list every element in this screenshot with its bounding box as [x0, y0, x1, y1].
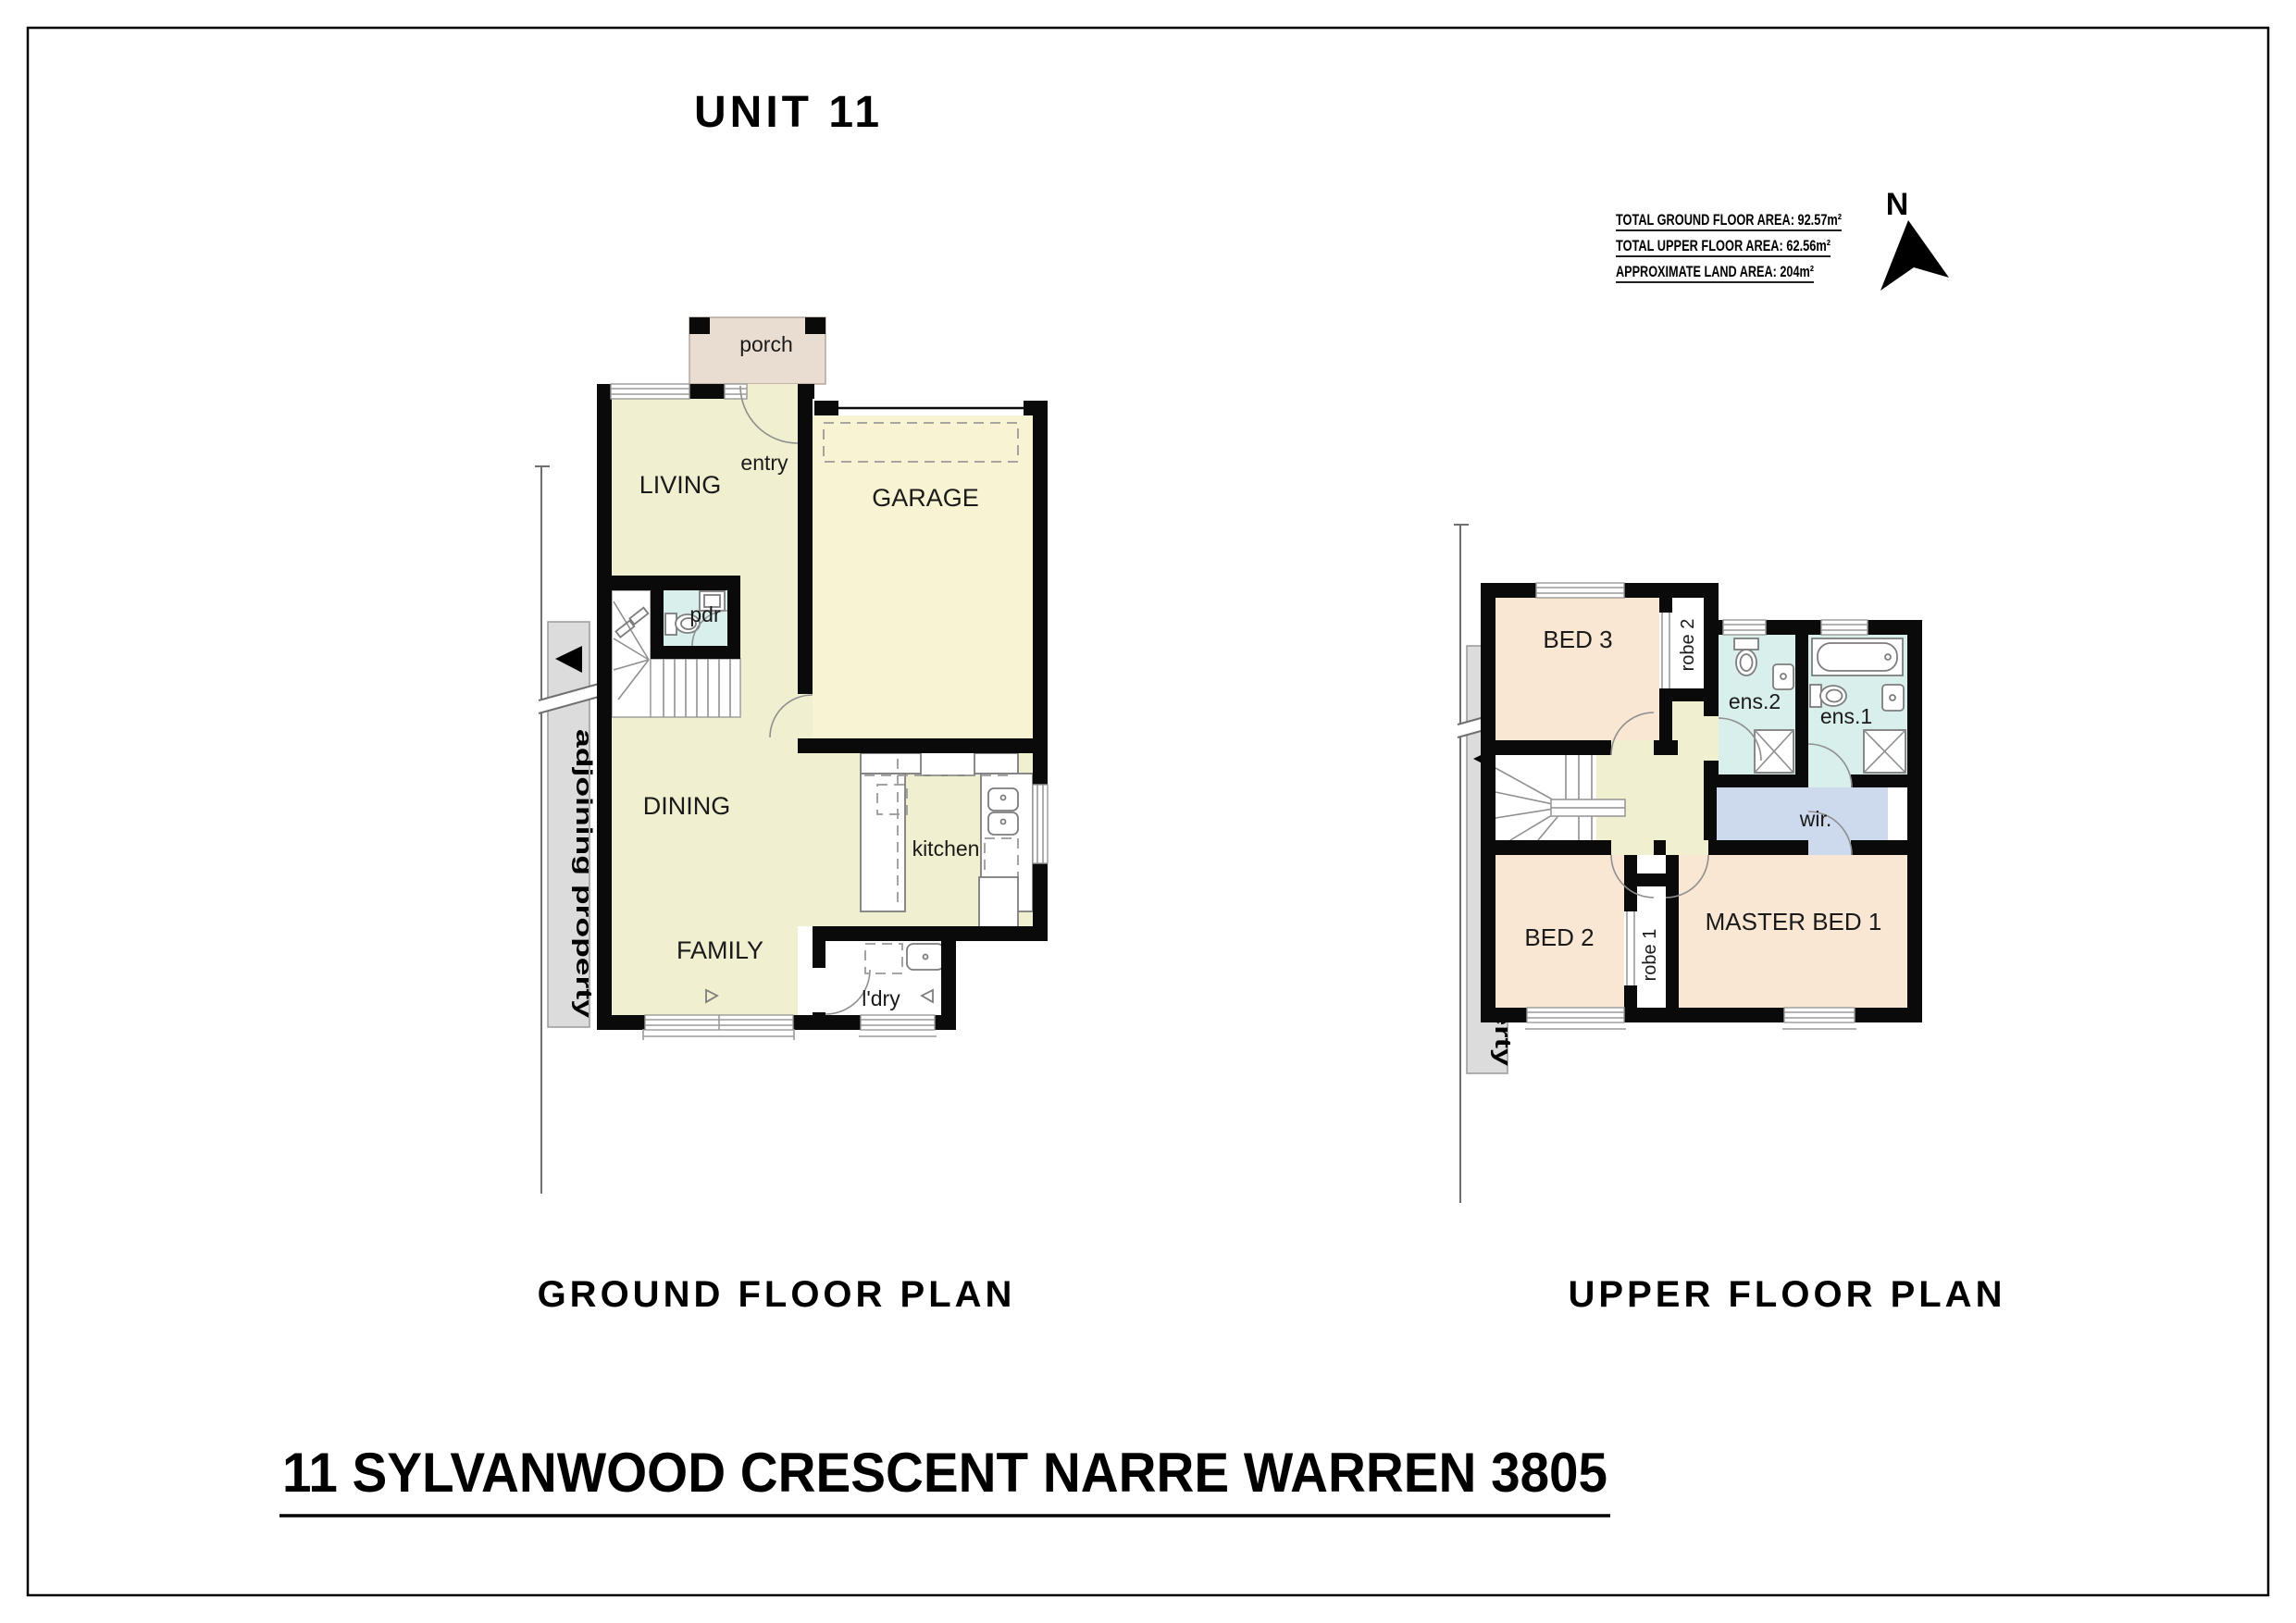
stairwell — [1496, 755, 1596, 840]
door-opening — [813, 968, 825, 1012]
wall-segment — [941, 926, 956, 1030]
window — [1525, 1008, 1626, 1029]
north-compass: N — [1880, 187, 1949, 291]
room-label-garage: GARAGE — [872, 484, 979, 512]
robe-opening — [1624, 911, 1637, 985]
window — [643, 1015, 794, 1040]
room-label-master: MASTER BED 1 — [1706, 908, 1882, 935]
toilet-icon — [1734, 638, 1758, 650]
door-opening — [740, 384, 798, 399]
upper-floor-plan: adjoining property — [1454, 525, 1922, 1203]
door-opening — [1666, 840, 1708, 855]
window — [1033, 785, 1048, 863]
boundary-label: adjoining property — [571, 729, 596, 1019]
room-label-pdr: pdr — [689, 602, 721, 626]
room-label-wir: wir. — [1799, 807, 1832, 831]
door-opening — [1611, 740, 1654, 755]
sink-icon — [907, 944, 944, 970]
door-opening — [1808, 840, 1851, 855]
unit-title: UNIT 11 — [694, 88, 883, 137]
room-label-bed3: BED 3 — [1543, 626, 1612, 653]
upper-area-text: TOTAL UPPER FLOOR AREA: 62.56m² — [1616, 238, 1831, 254]
window — [611, 384, 689, 399]
door-opening — [798, 694, 813, 738]
wall-segment — [798, 738, 1048, 753]
room-hall — [1596, 755, 1704, 840]
room-label-kitchen: kitchen — [912, 836, 980, 861]
sink-icon — [1882, 685, 1904, 711]
wall-segment — [597, 384, 612, 1030]
window — [1782, 1008, 1856, 1029]
room-label-bed2: BED 2 — [1524, 923, 1594, 951]
room-label-robe2: robe 2 — [1678, 619, 1698, 672]
wall-segment — [1907, 620, 1922, 1022]
door-opening — [1808, 774, 1851, 787]
floor-plan-drawing: UNIT 11 GROUND FLOOR PLAN UPPER FLOOR PL… — [0, 0, 2296, 1623]
upper-plan-title: UPPER FLOOR PLAN — [1569, 1274, 2006, 1315]
room-label-ens1: ens.1 — [1820, 704, 1872, 728]
window — [725, 384, 747, 399]
ground-plan-title: GROUND FLOOR PLAN — [538, 1274, 1016, 1315]
room-bed3 — [1496, 598, 1659, 740]
porch-post — [689, 317, 710, 334]
shower-icon — [1864, 730, 1905, 773]
ground-boundary: adjoining property — [535, 466, 599, 1194]
room-label-entry: entry — [740, 451, 788, 475]
room-label-ens2: ens.2 — [1729, 689, 1781, 713]
sink-icon — [1773, 664, 1793, 689]
ground-floor-plan: adjoining property — [535, 317, 1048, 1194]
fridge-space — [979, 877, 1018, 927]
north-arrow-icon — [1880, 220, 1949, 291]
robe-opening — [1659, 613, 1672, 688]
land-area-text: APPROXIMATE LAND AREA: 204m² — [1616, 264, 1814, 280]
room-label-dining: DINING — [643, 792, 731, 820]
window — [1723, 620, 1766, 635]
door-opening — [1611, 840, 1654, 855]
area-summary: TOTAL GROUND FLOOR AREA: 92.57m² TOTAL U… — [1616, 212, 1842, 282]
room-label-living: LIVING — [639, 471, 722, 499]
wall-segment — [1704, 774, 1907, 787]
porch-post — [805, 317, 825, 334]
window — [1536, 583, 1624, 598]
wall-segment — [1481, 740, 1611, 755]
wall-segment — [1672, 688, 1719, 701]
wall-segment — [597, 576, 740, 590]
room-label-family: FAMILY — [676, 936, 763, 964]
room-label-laundry: l'dry — [862, 986, 900, 1010]
door-opening — [1704, 716, 1719, 761]
wall-segment — [1654, 740, 1678, 755]
wall-segment — [1481, 583, 1496, 1022]
window — [859, 1015, 937, 1036]
address-title: 11 SYLVANWOOD CRESCENT NARRE WARREN 3805 — [282, 1442, 1607, 1504]
ground-area-text: TOTAL GROUND FLOOR AREA: 92.57m² — [1616, 212, 1842, 229]
wall-segment — [1624, 873, 1679, 886]
floorplan-sheet: UNIT 11 GROUND FLOOR PLAN UPPER FLOOR PL… — [0, 0, 2296, 1623]
wall-segment — [651, 646, 740, 659]
wall-segment — [1795, 635, 1808, 774]
room-garage — [813, 415, 1033, 738]
north-label: N — [1886, 187, 1909, 222]
wall-segment — [813, 926, 1048, 941]
window — [1821, 620, 1868, 635]
room-label-robe1: robe 1 — [1640, 929, 1660, 982]
room-label-porch: porch — [739, 332, 793, 356]
bath-icon — [1812, 638, 1903, 675]
